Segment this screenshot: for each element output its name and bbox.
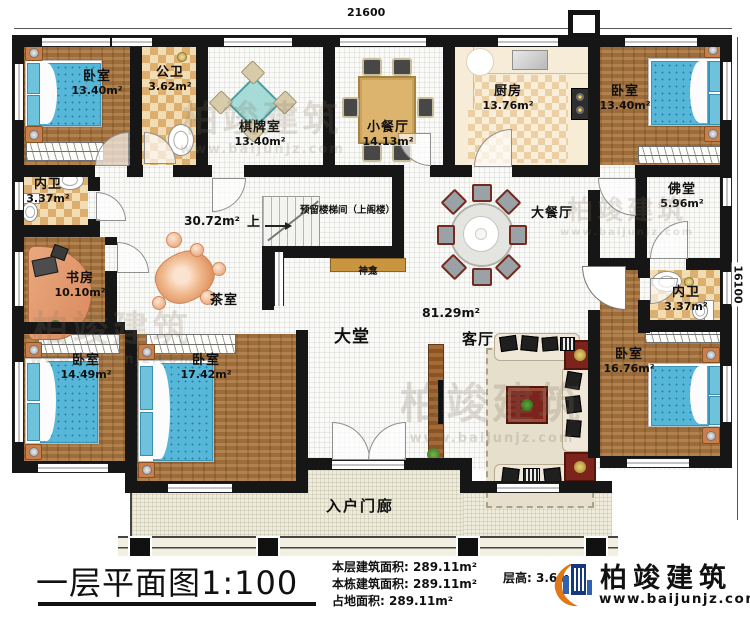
brand-url: www.baijunjz.com xyxy=(599,591,750,607)
area-stats: 本层建筑面积: 289.11m² 本栋建筑面积: 289.11m² 占地面积: … xyxy=(332,559,477,610)
shrine-label: 神龛 xyxy=(358,266,377,277)
kitchen-round-table xyxy=(466,48,494,76)
brand-name: 柏竣建筑 xyxy=(600,556,732,595)
stat-value: 289.11m² xyxy=(413,577,477,591)
stat-value: 289.11m² xyxy=(413,560,477,574)
wall xyxy=(173,165,212,177)
nightstand xyxy=(702,427,720,444)
room-area: 3.37m² xyxy=(10,193,86,206)
bed-headboard xyxy=(141,367,152,409)
window xyxy=(38,463,108,473)
chair xyxy=(342,97,359,118)
wall xyxy=(244,165,398,177)
tea-stone xyxy=(152,296,166,310)
window xyxy=(627,458,689,468)
wall xyxy=(196,35,208,177)
room-label-small-dining: 小餐厅 14.13m² xyxy=(340,121,436,149)
chair xyxy=(437,225,455,245)
pendant-light-icon xyxy=(177,52,187,62)
window xyxy=(112,37,152,47)
room-name: 内卫 xyxy=(648,286,724,301)
room-name: 棋牌室 xyxy=(212,121,308,136)
wall xyxy=(588,310,600,458)
tea-stone xyxy=(212,262,226,276)
nightstand xyxy=(25,126,43,143)
bed-headboard xyxy=(28,364,39,400)
room-label-inner-bath-right: 内卫 3.37m² xyxy=(648,286,724,314)
nightstand xyxy=(25,444,42,460)
chimney xyxy=(568,10,600,38)
room-label-kitchen: 厨房 13.76m² xyxy=(466,85,550,113)
tv xyxy=(438,380,443,424)
room-label-inner-bath-left: 内卫 3.37m² xyxy=(10,178,86,206)
corridor-area-label: 30.72m² xyxy=(172,211,252,229)
window xyxy=(498,37,558,47)
wall xyxy=(512,165,598,177)
chair xyxy=(362,58,382,76)
sofa-pillow xyxy=(560,337,575,351)
dimension-right: 16100 xyxy=(732,262,745,306)
wall xyxy=(262,246,274,310)
chair xyxy=(509,225,527,245)
dimension-line-top xyxy=(14,28,732,29)
chair xyxy=(392,58,412,76)
room-name: 卧室 xyxy=(580,85,670,100)
hall-area-label: 81.29m² xyxy=(414,303,488,321)
room-area: 3.37m² xyxy=(648,301,724,314)
sofa-pillow xyxy=(565,371,583,390)
tea-stone xyxy=(190,243,204,257)
window xyxy=(497,483,559,493)
wall xyxy=(430,165,472,177)
window xyxy=(722,62,732,120)
nightstand xyxy=(702,347,720,363)
wall xyxy=(296,458,332,470)
sofa-pillow xyxy=(565,419,581,437)
chair xyxy=(417,97,434,118)
coffee-table xyxy=(506,386,548,424)
window xyxy=(168,483,232,493)
logo-building-icon xyxy=(550,560,596,610)
plan-title: 一层平面图1:100 xyxy=(36,558,298,604)
bed-sheet xyxy=(690,366,707,424)
title-underline xyxy=(38,602,316,606)
window xyxy=(224,37,292,47)
wall xyxy=(88,177,100,191)
stat-label: 占地面积: xyxy=(332,594,385,608)
chair xyxy=(472,184,492,202)
floor-plan-sheet: 21600 16100 xyxy=(0,0,750,622)
stat-label: 本栋建筑面积: xyxy=(332,577,409,591)
stat-value: 289.11m² xyxy=(389,594,453,608)
table-center xyxy=(475,228,487,240)
stat-line: 占地面积: 289.11m² xyxy=(332,593,477,610)
tea-room-label: 茶室 xyxy=(196,290,252,309)
gold-dish-icon xyxy=(574,461,586,473)
wall xyxy=(635,165,720,177)
window xyxy=(722,366,732,422)
wall xyxy=(323,35,335,165)
nightstand xyxy=(138,344,155,360)
room-area: 10.10m² xyxy=(42,287,118,300)
wall xyxy=(130,35,142,165)
tea-stone xyxy=(166,232,182,248)
wall xyxy=(12,322,125,334)
title-block: 一层平面图1:100 本层建筑面积: 289.11m² 本栋建筑面积: 289.… xyxy=(0,556,750,622)
stair-arrowhead-icon xyxy=(285,222,292,230)
window xyxy=(722,178,732,206)
porch-label: 入户门廊 xyxy=(300,497,420,515)
room-name: 卧室 xyxy=(52,70,142,85)
room-area: 13.40m² xyxy=(212,136,308,149)
window xyxy=(625,37,697,47)
chair xyxy=(472,268,492,286)
bed-sheet xyxy=(690,61,707,123)
bed-headboard xyxy=(141,413,152,455)
bed-headboard xyxy=(28,96,39,125)
sofa-pillow xyxy=(520,335,538,352)
wall xyxy=(12,165,95,177)
wall xyxy=(686,258,732,270)
stat-label: 本层建筑面积: xyxy=(332,560,409,574)
room-name: 小餐厅 xyxy=(340,121,436,136)
entrance-threshold xyxy=(332,460,404,470)
room-label-buddha-hall: 佛堂 5.96m² xyxy=(642,183,722,211)
room-area: 13.40m² xyxy=(580,100,670,113)
room-area: 16.76m² xyxy=(584,363,674,376)
room-name: 卧室 xyxy=(162,354,250,369)
room-name: 卧室 xyxy=(42,354,130,369)
bed-headboard xyxy=(28,64,39,93)
wardrobe xyxy=(638,146,722,164)
room-label-bedroom-bm: 卧室 17.42m² xyxy=(162,354,250,382)
stat-line: 本层建筑面积: 289.11m² xyxy=(332,559,477,576)
room-name: 厨房 xyxy=(466,85,550,100)
room-label-bedroom-tl: 卧室 13.40m² xyxy=(52,70,142,98)
wardrobe xyxy=(26,142,104,161)
room-label-bedroom-bl: 卧室 14.49m² xyxy=(42,354,130,382)
room-name: 卧室 xyxy=(584,348,674,363)
room-area: 13.40m² xyxy=(52,85,142,98)
window xyxy=(14,64,24,120)
bed-headboard xyxy=(28,404,39,440)
room-area: 17.42m² xyxy=(162,369,250,382)
wall xyxy=(105,237,117,245)
sofa-pillow xyxy=(565,395,582,414)
room-area: 14.49m² xyxy=(42,369,130,382)
staircase xyxy=(262,196,320,248)
wall xyxy=(12,225,100,237)
window xyxy=(14,252,24,306)
room-area: 14.13m² xyxy=(340,136,436,149)
stair-direction-arrow xyxy=(265,225,287,227)
room-name: 佛堂 xyxy=(642,183,722,198)
wall xyxy=(638,268,650,278)
plant-icon xyxy=(521,399,533,411)
wall xyxy=(588,190,600,262)
window xyxy=(14,362,24,442)
room-label-chess-room: 棋牌室 13.40m² xyxy=(212,121,308,149)
window xyxy=(340,37,426,47)
nightstand xyxy=(138,462,155,478)
kitchen-sink xyxy=(512,50,548,70)
dimension-top: 21600 xyxy=(344,6,388,19)
room-label-bedroom-br: 卧室 16.76m² xyxy=(584,348,674,376)
wall xyxy=(650,320,732,332)
hall-label: 大堂 xyxy=(320,328,384,348)
stat-line: 本栋建筑面积: 289.11m² xyxy=(332,576,477,593)
wardrobe xyxy=(146,334,236,354)
shrine: 神龛 xyxy=(330,258,406,272)
partition-screen xyxy=(274,252,284,306)
sofa-pillow xyxy=(541,336,558,351)
room-label-public-bath: 公卫 3.62m² xyxy=(132,66,208,94)
room-area: 3.62m² xyxy=(132,81,208,94)
wall xyxy=(127,165,143,177)
living-room-label: 客厅 xyxy=(448,330,508,348)
room-name: 书房 xyxy=(42,272,118,287)
room-label-bedroom-tr: 卧室 13.40m² xyxy=(580,85,670,113)
brand-logo-icon xyxy=(550,560,596,610)
room-name: 内卫 xyxy=(10,178,86,193)
room-area: 5.96m² xyxy=(642,198,722,211)
large-dining-label: 大餐厅 xyxy=(520,203,584,222)
stairs-note: 预留楼梯间（上阁楼） xyxy=(300,206,420,217)
wall xyxy=(443,35,455,165)
room-area: 13.76m² xyxy=(466,100,550,113)
nightstand xyxy=(25,342,42,358)
window xyxy=(42,37,110,47)
room-label-study: 书房 10.10m² xyxy=(42,272,118,300)
floor-height-label: 层高: xyxy=(503,571,532,585)
room-name: 公卫 xyxy=(132,66,208,81)
